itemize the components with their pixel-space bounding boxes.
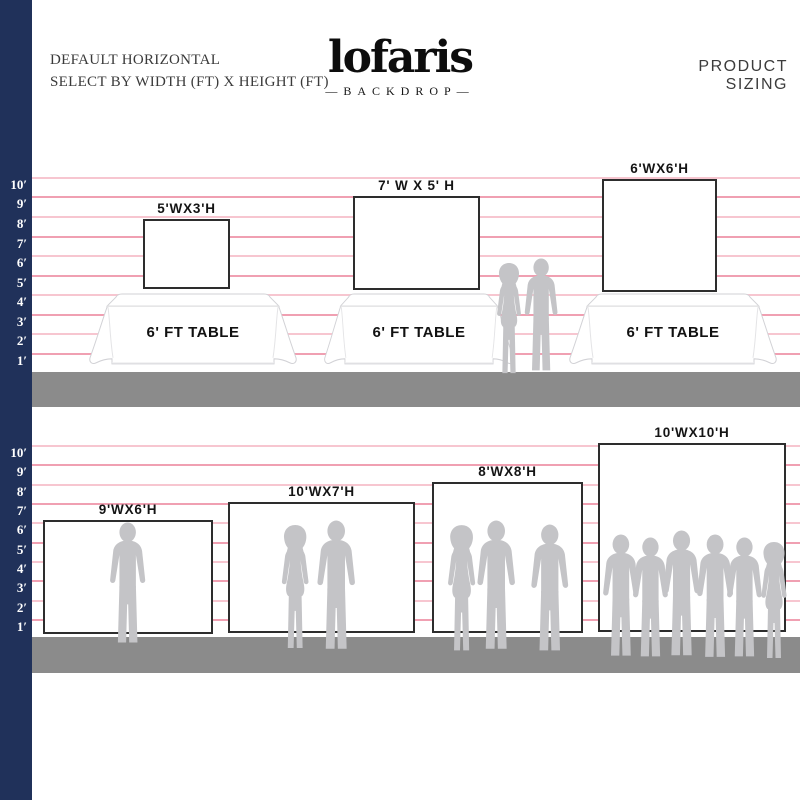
people-silhouette-man — [96, 522, 160, 648]
ruler-label: 10′ — [0, 177, 27, 193]
ruler-label: 8′ — [0, 216, 27, 232]
backdrop-5x3 — [143, 219, 230, 289]
ruler-label: 2′ — [0, 600, 27, 616]
brand-subtitle: —BACKDROP— — [310, 84, 490, 99]
brand-logo: lofaris —BACKDROP— — [310, 36, 490, 99]
ruler-label: 9′ — [0, 196, 27, 212]
backdrop-label-7x5: 7' W X 5' H — [353, 178, 480, 194]
ruler-label: 9′ — [0, 464, 27, 480]
backdrop-6x6 — [602, 179, 717, 292]
ruler-bar — [0, 0, 32, 800]
people-silhouette-couple — [268, 518, 372, 656]
backdrop-7x5 — [353, 196, 480, 290]
ruler-label: 10′ — [0, 445, 27, 461]
backdrop-label-6x6: 6'WX6'H — [602, 161, 717, 177]
ruler-label: 5′ — [0, 542, 27, 558]
table-label: 6' FT TABLE — [568, 324, 778, 341]
ruler-label: 4′ — [0, 561, 27, 577]
ruler-label: 5′ — [0, 275, 27, 291]
brand-name: lofaris — [310, 36, 490, 80]
ruler-label: 7′ — [0, 236, 27, 252]
ruler-label: 3′ — [0, 314, 27, 330]
ruler-label: 1′ — [0, 619, 27, 635]
table-label: 6' FT TABLE — [88, 324, 298, 341]
backdrop-label-8x8: 8'WX8'H — [432, 464, 583, 480]
people-silhouette-couple — [488, 256, 568, 376]
ruler-label: 6′ — [0, 255, 27, 271]
ruler-label: 3′ — [0, 580, 27, 596]
backdrop-label-10x7: 10'WX7'H — [228, 484, 415, 500]
ruler-label: 7′ — [0, 503, 27, 519]
ruler-label: 2′ — [0, 333, 27, 349]
backdrop-label-9x6: 9'WX6'H — [43, 502, 213, 518]
product-sizing-chart: DEFAULT HORIZONTAL SELECT BY WIDTH (FT) … — [0, 0, 800, 800]
backdrop-label-5x3: 5'WX3'H — [143, 201, 230, 217]
table-label: 6' FT TABLE — [323, 324, 515, 341]
ruler-label: 4′ — [0, 294, 27, 310]
people-silhouette-trio — [438, 516, 580, 658]
floor — [32, 372, 800, 407]
ruler-label: 1′ — [0, 353, 27, 369]
ruler-label: 8′ — [0, 484, 27, 500]
backdrop-label-10x10: 10'WX10'H — [598, 425, 786, 441]
people-silhouette-group — [598, 528, 790, 664]
ruler-label: 6′ — [0, 522, 27, 538]
page-title: PRODUCT SIZING — [648, 58, 788, 94]
